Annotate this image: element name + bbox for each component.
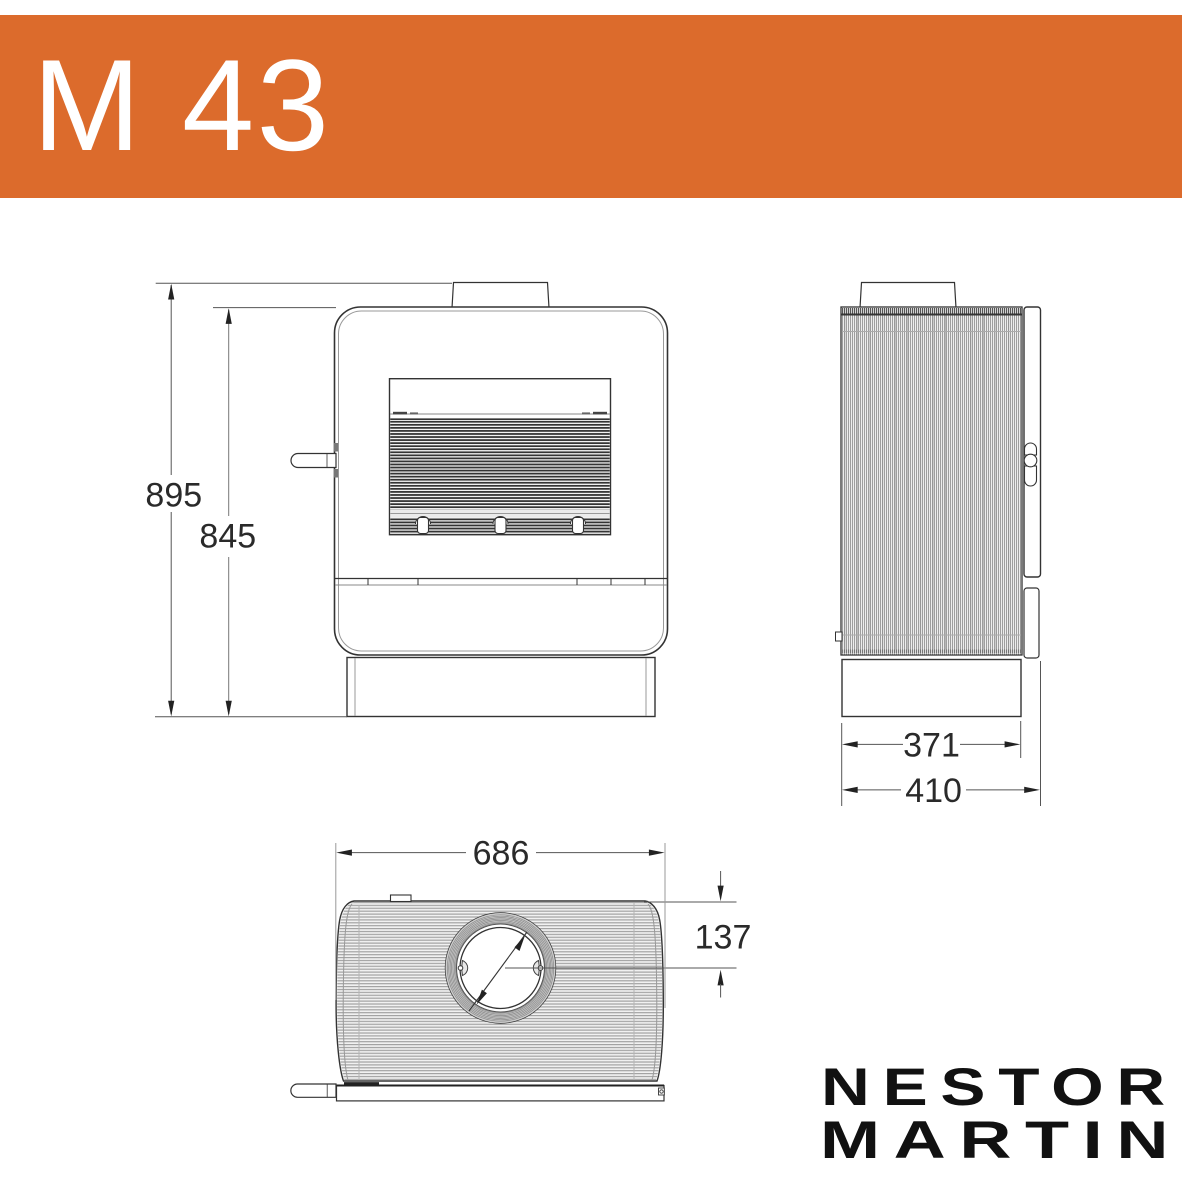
svg-text:845: 845 — [199, 518, 256, 556]
svg-text:MARTIN: MARTIN — [820, 1111, 1182, 1170]
svg-text:686: 686 — [473, 834, 530, 872]
svg-text:137: 137 — [695, 919, 752, 957]
svg-text:895: 895 — [145, 477, 202, 515]
svg-text:NESTOR: NESTOR — [821, 1058, 1178, 1117]
svg-text:371: 371 — [903, 726, 960, 764]
svg-text:M 43: M 43 — [33, 32, 332, 178]
svg-text:410: 410 — [905, 772, 962, 810]
